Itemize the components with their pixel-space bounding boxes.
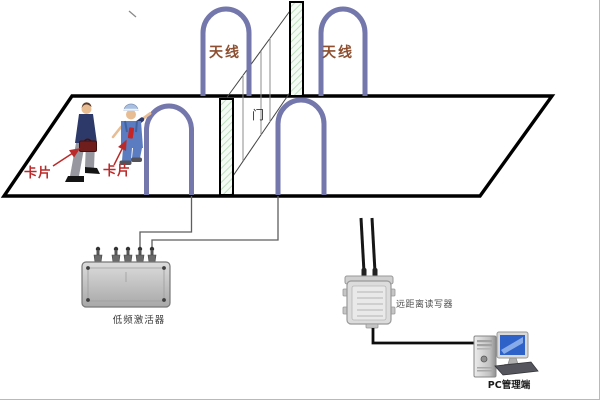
card-label-right: 卡片 xyxy=(103,163,131,179)
briefcase xyxy=(80,139,97,151)
rfid-gate-diagram: 低频激活器 远距离读写器 xyxy=(0,0,600,400)
activator-connectors xyxy=(94,247,156,262)
pc-workstation xyxy=(474,332,538,377)
antenna-label-left: 天线 xyxy=(209,44,241,61)
activator-label: 低频激活器 xyxy=(113,314,166,326)
door-front-panel xyxy=(220,99,233,195)
pc-monitor xyxy=(497,332,528,367)
reader-label: 远距离读写器 xyxy=(396,298,453,310)
door-back-panel xyxy=(290,2,303,96)
door-label: 门 xyxy=(252,107,264,122)
stray-mark xyxy=(129,11,136,17)
reader-device xyxy=(343,218,395,328)
pc-label: PC管理端 xyxy=(488,379,531,391)
reader-pc-cable xyxy=(373,328,476,343)
diagram-canvas: 低频激活器 远距离读写器 xyxy=(0,0,600,400)
reader-whip-antenna-right xyxy=(372,218,378,280)
card-label-left: 卡片 xyxy=(24,165,52,181)
activator-device xyxy=(82,247,170,307)
wire-antenna-left xyxy=(140,196,192,254)
pc-keyboard xyxy=(495,362,538,375)
pc-tower xyxy=(474,336,496,377)
reader-whip-antenna-left xyxy=(361,218,367,280)
wire-antenna-right xyxy=(152,196,278,254)
antenna-label-right: 天线 xyxy=(322,44,354,61)
